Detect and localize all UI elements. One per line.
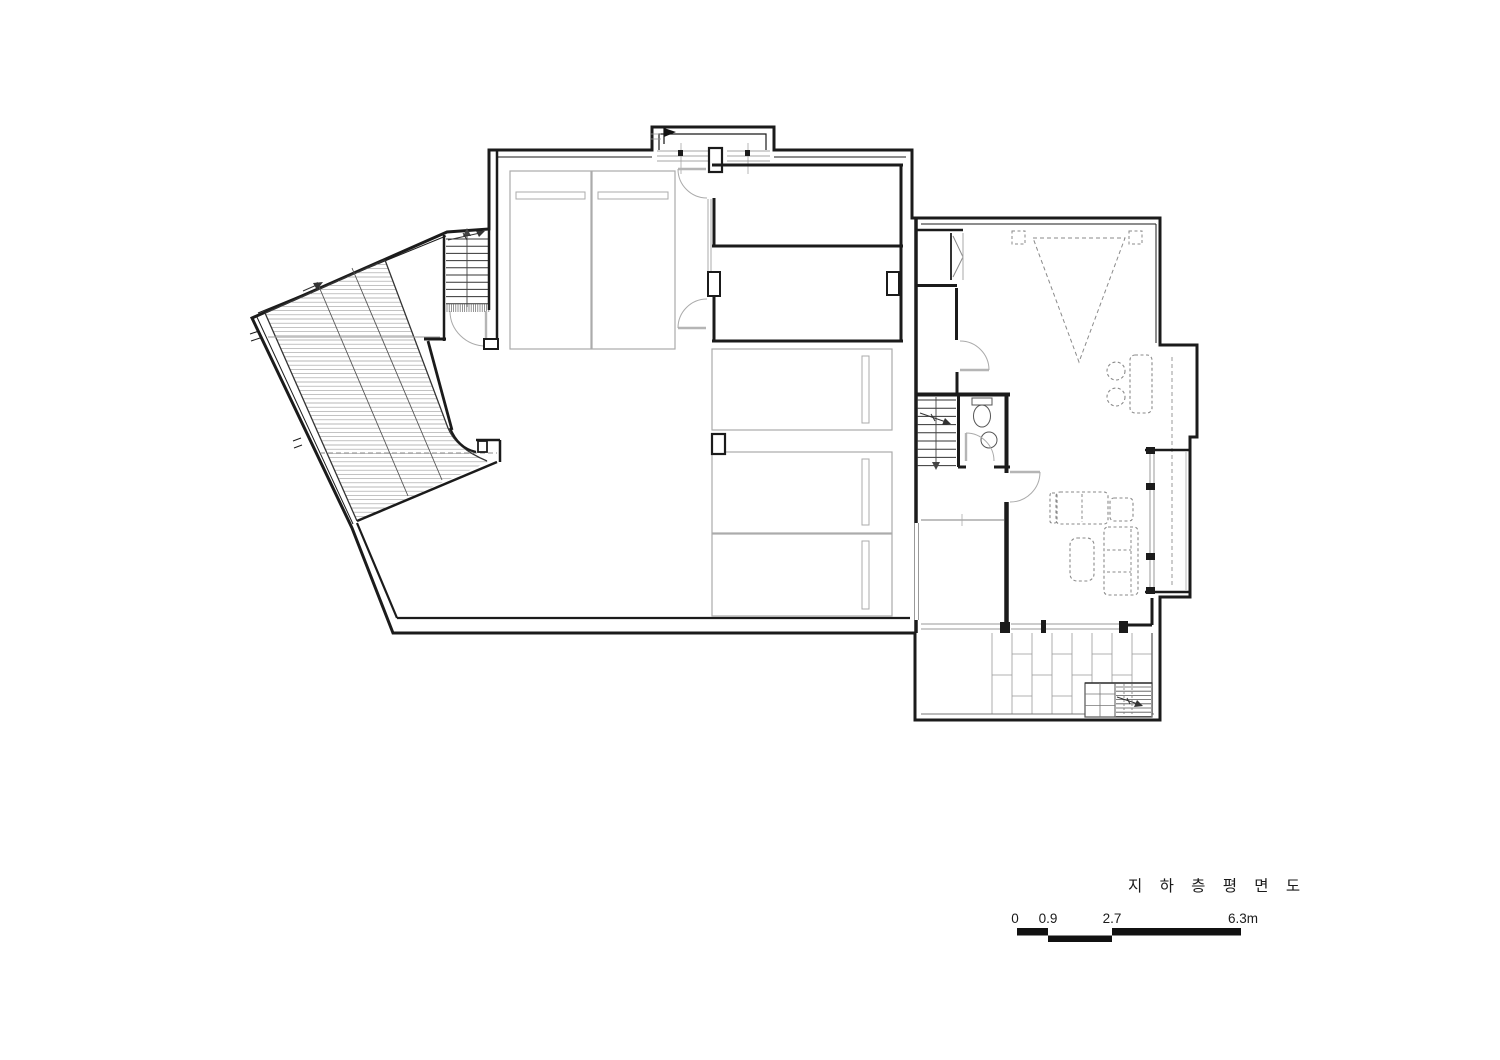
bed-headboard [598,192,668,199]
scale-segment [1017,928,1048,936]
entry-pier [709,148,722,172]
drawing-sheet: 지 하 층 평 면 도 0 0.9 2.7 6.3m [0,0,1500,1060]
scale-label-2: 2.7 [1103,911,1122,926]
terrace-steps [1085,683,1152,717]
wall-notch [708,272,720,296]
scale-segment [1112,928,1241,936]
bed-headboard [862,541,869,609]
scale-bar: 0 0.9 2.7 6.3m [1011,911,1258,942]
basement-floor-plan: 지 하 층 평 면 도 0 0.9 2.7 6.3m [0,0,1500,1060]
bed-headboard [862,356,869,423]
scale-label-1: 0.9 [1039,911,1058,926]
bed-headboard [516,192,585,199]
bed-headboard [862,459,869,525]
scale-segment [1048,936,1112,943]
scale-label-3: 6.3m [1228,911,1258,926]
plan-title: 지 하 층 평 면 도 [1128,877,1307,895]
title-block: 지 하 층 평 면 도 [1128,877,1307,895]
column [712,434,725,454]
wall-notch [887,272,899,295]
toilet-icon [972,398,992,427]
central-room-beds [712,349,892,616]
scale-label-0: 0 [1011,911,1019,926]
